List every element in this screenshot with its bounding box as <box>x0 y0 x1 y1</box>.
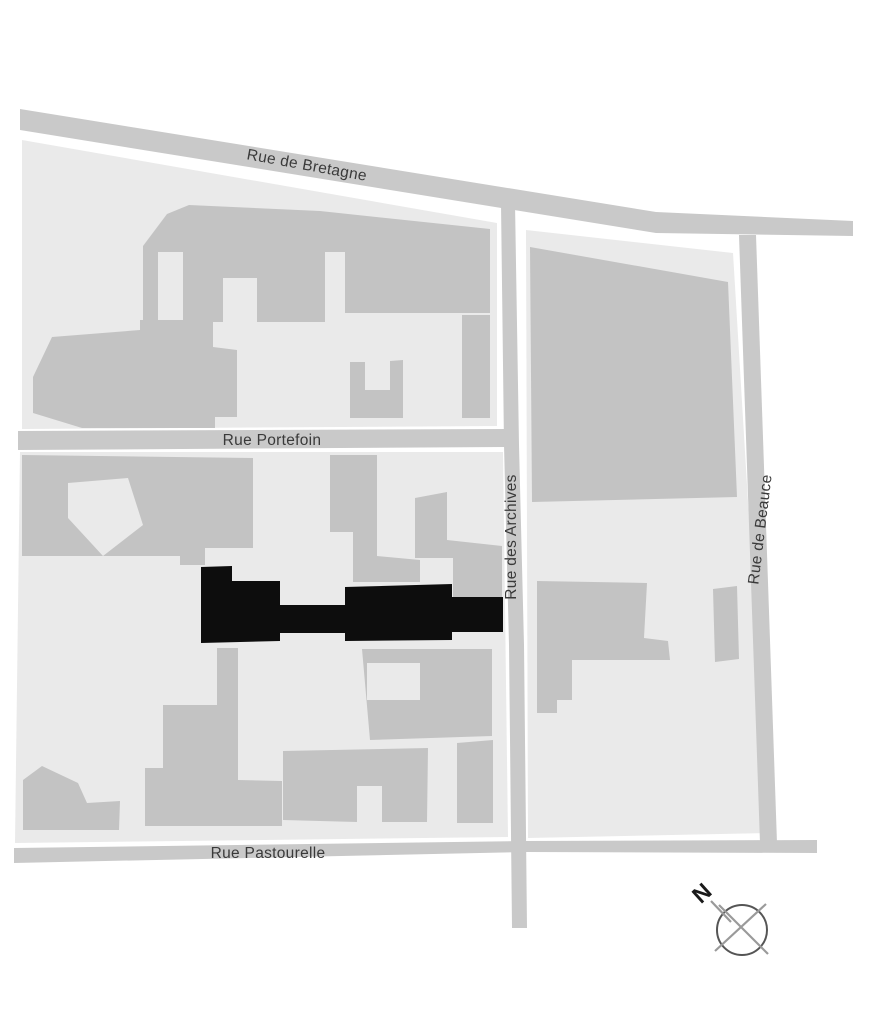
building-footprint <box>330 455 377 532</box>
site-plan-map: Rue de Bretagne Rue Portefoin Rue des Ar… <box>0 0 873 1024</box>
street-label-rue-pastourelle: Rue Pastourelle <box>211 845 326 862</box>
building-footprint <box>363 250 490 313</box>
street-label-rue-portefoin: Rue Portefoin <box>223 432 322 449</box>
street-rue-pastourelle <box>14 840 817 863</box>
building-footprint <box>530 247 737 502</box>
building-footprint <box>345 250 363 313</box>
street-label-rue-des-archives: Rue des Archives <box>503 474 520 599</box>
compass: N <box>687 878 768 955</box>
building-footprint <box>183 250 223 322</box>
building-footprint <box>462 315 490 418</box>
building-footprint <box>283 748 428 822</box>
compass-north-label: N <box>687 878 717 908</box>
compass-north-tick-icon <box>711 901 731 922</box>
street-label-rue-de-bretagne: Rue de Bretagne <box>245 146 368 184</box>
building-footprint <box>257 250 325 322</box>
building-footprint <box>457 740 493 823</box>
building-footprint <box>713 586 739 662</box>
building-footprint <box>223 250 257 278</box>
building-footprint <box>143 205 490 252</box>
compass-circle-icon <box>717 905 767 955</box>
building-footprint <box>33 320 237 428</box>
